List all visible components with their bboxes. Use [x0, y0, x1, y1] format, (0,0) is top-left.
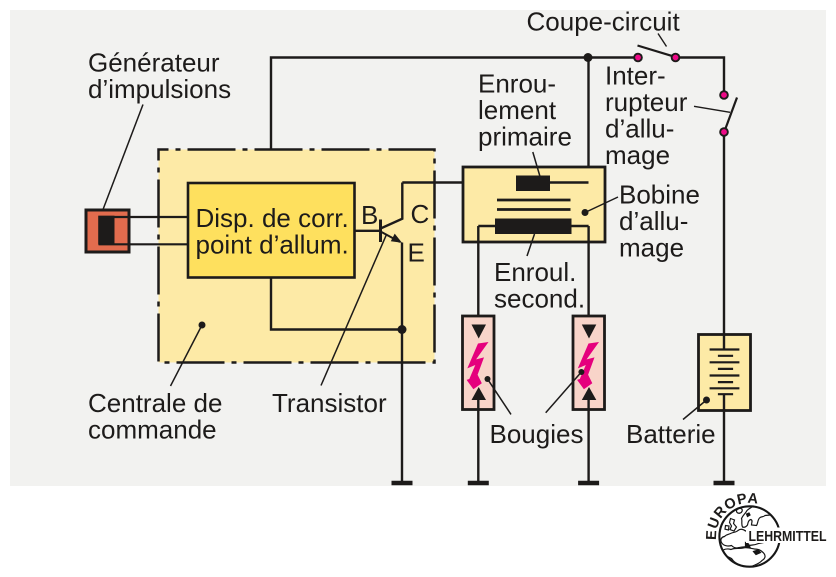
svg-text:d’allu-: d’allu- — [605, 114, 674, 144]
svg-text:mage: mage — [605, 140, 670, 170]
svg-text:Transistor: Transistor — [272, 388, 387, 418]
svg-text:point d’allum.: point d’allum. — [196, 230, 349, 260]
svg-text:Bougies: Bougies — [490, 419, 584, 449]
svg-text:primaire: primaire — [478, 122, 572, 152]
svg-text:Disp. de corr.: Disp. de corr. — [196, 203, 349, 233]
svg-text:Inter-: Inter- — [605, 61, 666, 91]
svg-text:LEHRMITTEL: LEHRMITTEL — [749, 529, 827, 545]
svg-text:Centrale de: Centrale de — [88, 388, 222, 418]
svg-text:Générateur: Générateur — [88, 48, 220, 78]
svg-text:rupteur: rupteur — [605, 87, 688, 117]
svg-text:B: B — [361, 200, 378, 230]
svg-text:d’allu-: d’allu- — [619, 206, 688, 236]
svg-text:Batterie: Batterie — [626, 419, 716, 449]
svg-text:Coupe-circuit: Coupe-circuit — [527, 7, 681, 37]
svg-text:Bobine: Bobine — [619, 180, 700, 210]
svg-text:mage: mage — [619, 233, 684, 263]
svg-text:Enrou-: Enrou- — [478, 69, 556, 99]
svg-text:Enroul.: Enroul. — [494, 257, 576, 287]
svg-text:lement: lement — [478, 95, 557, 125]
svg-text:d’impulsions: d’impulsions — [88, 74, 231, 104]
svg-text:C: C — [411, 199, 430, 229]
svg-text:commande: commande — [88, 415, 217, 445]
svg-text:E: E — [408, 238, 425, 268]
svg-text:second.: second. — [494, 284, 585, 314]
